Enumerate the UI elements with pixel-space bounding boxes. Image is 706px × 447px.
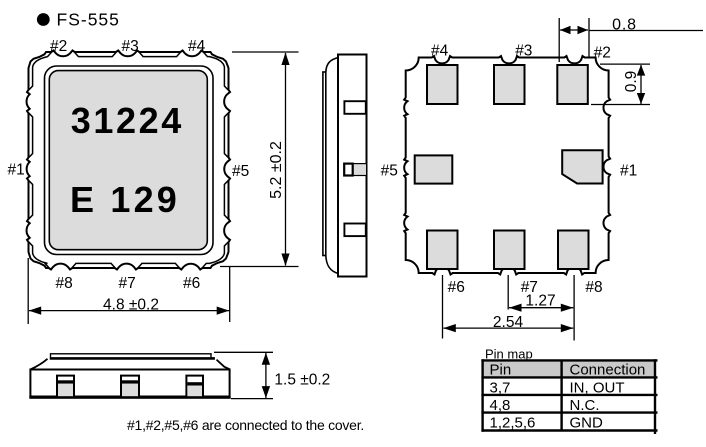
svg-text:#7: #7 — [119, 275, 136, 292]
svg-text:1,2,5,6: 1,2,5,6 — [490, 415, 536, 432]
svg-text:#4: #4 — [431, 42, 449, 59]
svg-text:#4: #4 — [188, 38, 206, 55]
svg-text:IN, OUT: IN, OUT — [570, 379, 625, 396]
svg-text:1.27: 1.27 — [525, 293, 555, 310]
svg-text:#3: #3 — [515, 42, 532, 59]
svg-text:5.2 ±0.2: 5.2 ±0.2 — [268, 141, 285, 199]
svg-text:#5: #5 — [381, 163, 398, 180]
svg-text:#6: #6 — [183, 275, 200, 292]
svg-text:#6: #6 — [448, 279, 465, 296]
svg-text:1.5 ±0.2: 1.5 ±0.2 — [274, 372, 330, 389]
svg-text:N.C.: N.C. — [570, 397, 600, 414]
svg-text:3,7: 3,7 — [490, 379, 511, 396]
svg-text:4.8 ±0.2: 4.8 ±0.2 — [103, 297, 159, 314]
svg-text:#1,#2,#5,#6 are connected to t: #1,#2,#5,#6 are connected to the cover. — [127, 417, 364, 433]
svg-text:#5: #5 — [232, 163, 249, 180]
svg-text:E 129: E 129 — [70, 179, 180, 220]
svg-text:0.9: 0.9 — [623, 71, 640, 93]
svg-text:31224: 31224 — [71, 100, 184, 141]
svg-text:Pin: Pin — [490, 362, 512, 379]
svg-text:GND: GND — [570, 415, 604, 432]
svg-text:#8: #8 — [585, 279, 602, 296]
svg-text:#2: #2 — [50, 38, 67, 55]
svg-text:#1: #1 — [8, 162, 25, 179]
svg-text:FS-555: FS-555 — [57, 10, 120, 30]
svg-text:0.8: 0.8 — [612, 17, 637, 34]
svg-text:4,8: 4,8 — [490, 397, 511, 414]
svg-text:#2: #2 — [594, 44, 611, 61]
svg-text:#8: #8 — [56, 275, 73, 292]
svg-text:#1: #1 — [620, 163, 637, 180]
svg-text:2.54: 2.54 — [493, 314, 524, 331]
svg-text:Connection: Connection — [570, 362, 646, 379]
svg-text:#3: #3 — [122, 38, 139, 55]
